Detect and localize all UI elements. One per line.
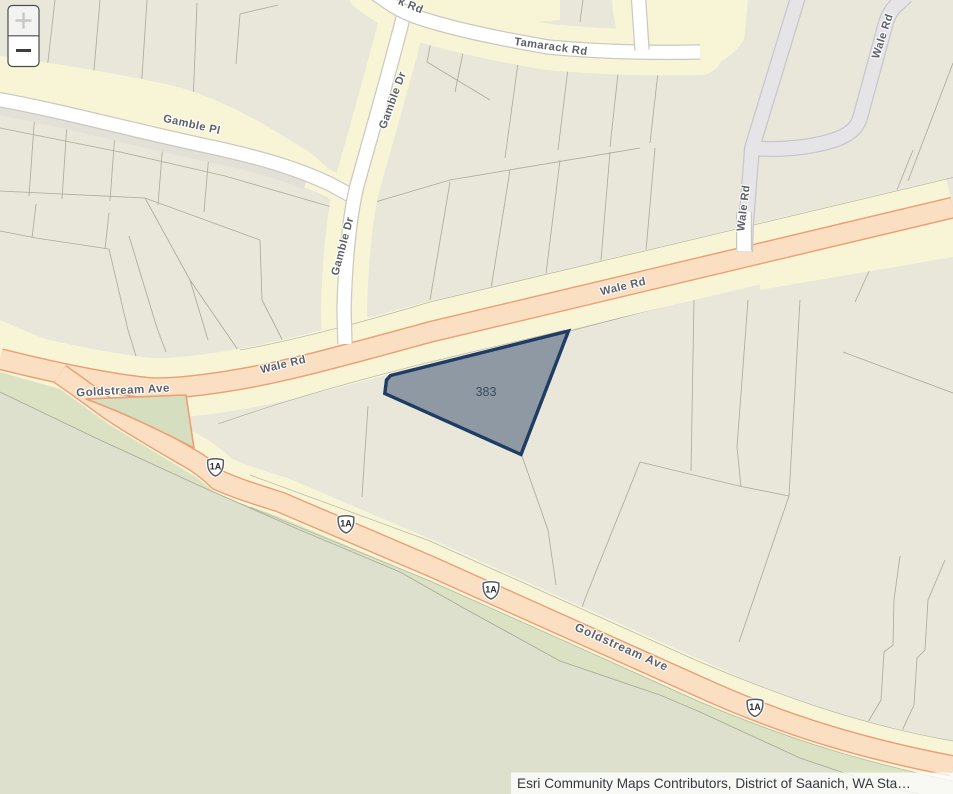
svg-text:Esri Community Maps Contributo: Esri Community Maps Contributors, Distri… (517, 776, 911, 791)
svg-text:383: 383 (476, 385, 497, 399)
